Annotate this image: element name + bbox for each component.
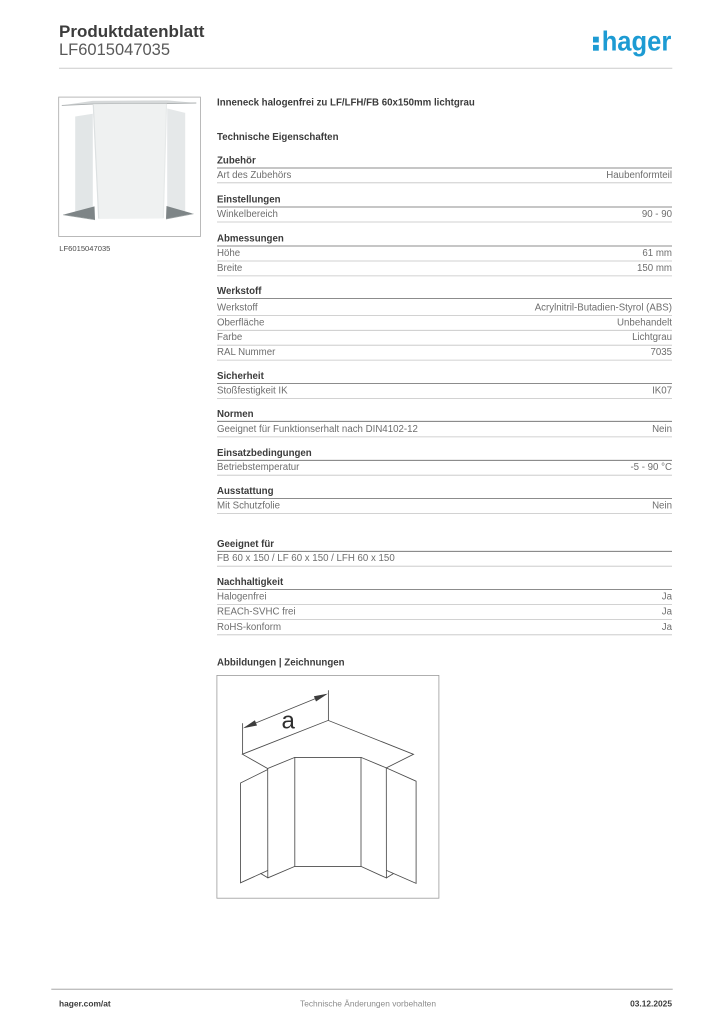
svg-text:Breite: Breite [217,263,242,274]
svg-text:Technische Eigenschaften: Technische Eigenschaften [217,132,339,143]
svg-text:Normen: Normen [217,409,254,420]
svg-text:Höhe: Höhe [217,248,240,259]
svg-text:Werkstoff: Werkstoff [217,286,262,297]
svg-text:Ausstattung: Ausstattung [217,486,274,497]
svg-text:IK07: IK07 [652,386,672,397]
svg-text:Sicherheit: Sicherheit [217,371,265,382]
svg-text:-5 - 90 °C: -5 - 90 °C [630,462,672,473]
svg-text:Nein: Nein [652,501,672,512]
svg-text:Geeignet für Funktionserhalt n: Geeignet für Funktionserhalt nach DIN410… [217,424,418,435]
svg-text:RoHS-konform: RoHS-konform [217,622,281,633]
svg-text:Mit Schutzfolie: Mit Schutzfolie [217,501,280,512]
svg-text:Halogenfrei: Halogenfrei [217,592,267,603]
svg-text:FB 60 x 150 / LF 60 x 150 / LF: FB 60 x 150 / LF 60 x 150 / LFH 60 x 150 [217,553,395,564]
svg-text:Acrylnitril-Butadien-Styrol (A: Acrylnitril-Butadien-Styrol (ABS) [535,302,672,313]
svg-text:Stoßfestigkeit IK: Stoßfestigkeit IK [217,386,288,397]
svg-text:Unbehandelt: Unbehandelt [617,317,672,328]
svg-text:Haubenformteil: Haubenformteil [606,170,672,181]
svg-text:Oberfläche: Oberfläche [217,317,264,328]
svg-text:Nein: Nein [652,424,672,435]
svg-text:LF6015047035: LF6015047035 [59,41,170,59]
svg-text:Ja: Ja [662,622,673,633]
svg-text:a: a [282,708,296,735]
svg-text:Inneneck halogenfrei zu LF/LFH: Inneneck halogenfrei zu LF/LFH/FB 60x150… [217,98,475,109]
svg-text:RAL Nummer: RAL Nummer [217,347,276,358]
svg-text:Geeignet für: Geeignet für [217,539,274,550]
svg-text:03.12.2025: 03.12.2025 [630,998,672,1008]
svg-text:LF6015047035: LF6015047035 [59,244,110,253]
svg-text:Lichtgrau: Lichtgrau [632,332,672,343]
svg-text:hager.com/at: hager.com/at [59,998,111,1008]
svg-text:hager: hager [602,26,672,57]
svg-text:Art des Zubehörs: Art des Zubehörs [217,170,291,181]
svg-text:Ja: Ja [662,592,673,603]
svg-text:Abbildungen | Zeichnungen: Abbildungen | Zeichnungen [217,658,345,669]
svg-text:Technische Änderungen vorbehal: Technische Änderungen vorbehalten [300,998,436,1008]
svg-text:7035: 7035 [650,347,672,358]
svg-text:90 - 90: 90 - 90 [642,209,673,220]
svg-text:Produktdatenblatt: Produktdatenblatt [59,22,205,41]
svg-text:Einsatzbedingungen: Einsatzbedingungen [217,448,312,459]
svg-text:Werkstoff: Werkstoff [217,302,258,313]
svg-text:61 mm: 61 mm [642,248,672,259]
svg-text:Einstellungen: Einstellungen [217,195,281,206]
svg-text:Farbe: Farbe [217,332,242,343]
svg-text:Betriebstemperatur: Betriebstemperatur [217,462,300,473]
svg-text:Abmessungen: Abmessungen [217,234,284,245]
svg-text:Zubehör: Zubehör [217,156,256,167]
svg-text:150 mm: 150 mm [637,263,672,274]
svg-text:Winkelbereich: Winkelbereich [217,209,278,220]
svg-text:Ja: Ja [662,606,673,617]
svg-text:REACh-SVHC frei: REACh-SVHC frei [217,606,296,617]
svg-text:Nachhaltigkeit: Nachhaltigkeit [217,577,284,588]
